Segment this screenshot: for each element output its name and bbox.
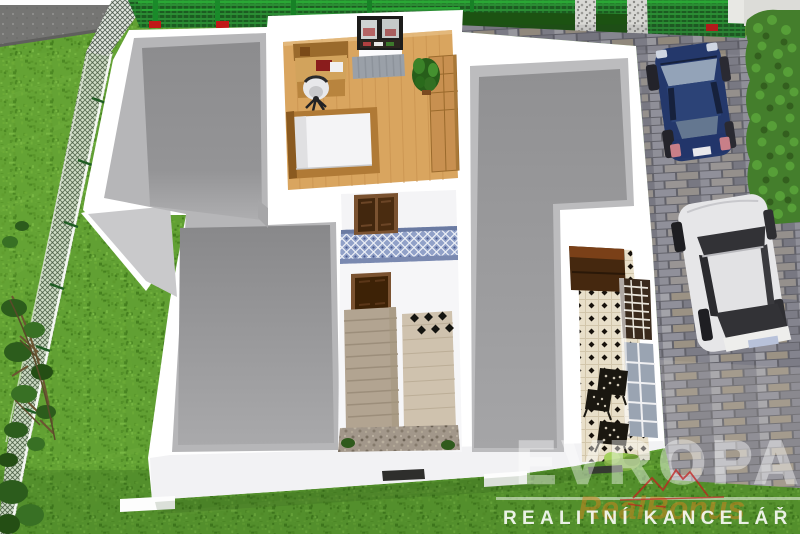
svg-text:EVROPA: EVROPA xyxy=(516,429,800,496)
svg-text:REALITNÍ KANCELÁŘ: REALITNÍ KANCELÁŘ xyxy=(503,507,793,529)
